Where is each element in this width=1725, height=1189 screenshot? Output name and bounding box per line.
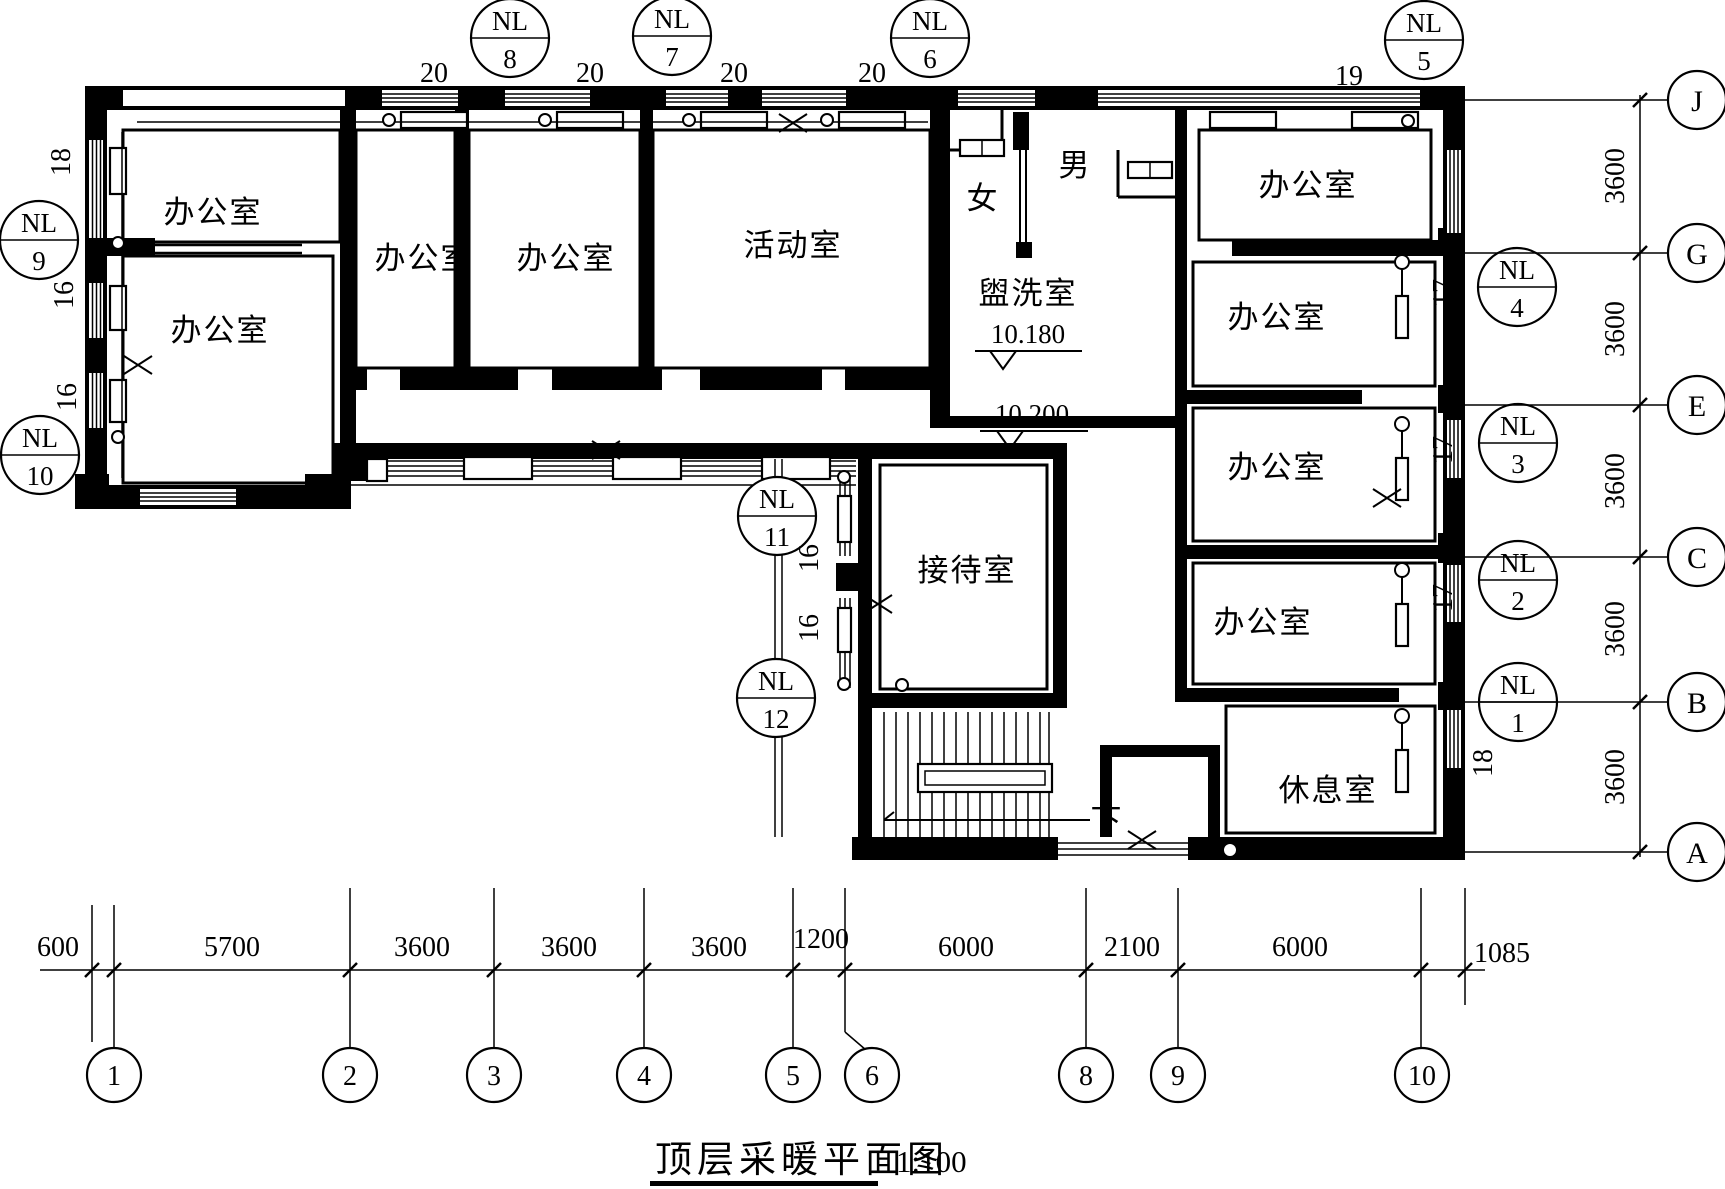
room-label-office: 办公室 <box>1228 450 1327 485</box>
elevation-corridor: 10.200 <box>995 399 1069 429</box>
svg-text:5: 5 <box>1417 46 1431 76</box>
riser-tag-nl10: NL 10 <box>1 416 79 494</box>
pipe-number: 20 <box>576 58 604 89</box>
svg-text:NL: NL <box>654 4 690 34</box>
svg-text:3600: 3600 <box>1600 148 1631 204</box>
svg-text:NL: NL <box>492 6 528 36</box>
svg-text:5700: 5700 <box>204 932 260 963</box>
svg-text:9: 9 <box>32 246 46 276</box>
svg-text:3600: 3600 <box>394 932 450 963</box>
pipe-number: 17 <box>1428 279 1459 307</box>
svg-text:11: 11 <box>764 522 790 552</box>
room-label-office: 办公室 <box>517 241 616 276</box>
axis-grid-bottom: 600 5700 3600 3600 3600 1200 6000 2100 6… <box>37 888 1530 1102</box>
svg-text:NL: NL <box>1500 670 1536 700</box>
pipe-riser-icon <box>539 114 551 126</box>
svg-text:5: 5 <box>786 1061 800 1092</box>
svg-text:NL: NL <box>1499 255 1535 285</box>
pipe-number: 18 <box>1468 749 1499 777</box>
svg-text:1200: 1200 <box>793 924 849 955</box>
pipe-number: 16 <box>49 281 80 309</box>
svg-text:3600: 3600 <box>1600 453 1631 509</box>
axis-dim-col: 600 5700 3600 3600 3600 1200 6000 2100 6… <box>37 924 1530 969</box>
svg-text:NL: NL <box>22 423 58 453</box>
pipe-number: 16 <box>794 544 825 572</box>
pipe-riser-icon <box>838 678 850 690</box>
room-label-female: 女 <box>967 181 1000 216</box>
svg-text:3600: 3600 <box>1600 301 1631 357</box>
room-label-washroom: 盥洗室 <box>979 276 1078 311</box>
pipe-riser-icon <box>1402 115 1414 127</box>
riser-tag-nl12: NL 12 <box>737 659 815 737</box>
room-label-reception: 接待室 <box>918 553 1017 588</box>
axis-dim-row: 3600 3600 3600 3600 3600 <box>1600 148 1631 805</box>
svg-text:8: 8 <box>503 44 517 74</box>
riser-tag-nl9: NL 9 <box>0 201 78 279</box>
svg-text:3600: 3600 <box>541 932 597 963</box>
pipe-number: 20 <box>858 58 886 89</box>
pipe-number: 20 <box>720 58 748 89</box>
pipe-number: 19 <box>1335 61 1363 92</box>
svg-text:G: G <box>1686 238 1708 271</box>
riser-tag-nl5: NL 5 <box>1385 1 1463 79</box>
svg-text:1: 1 <box>1511 708 1525 738</box>
svg-text:12: 12 <box>763 704 790 734</box>
svg-text:NL: NL <box>758 666 794 696</box>
room-label-office: 办公室 <box>164 195 263 230</box>
svg-text:1: 1 <box>107 1061 121 1092</box>
pipe-number: 16 <box>52 383 83 411</box>
svg-text:E: E <box>1688 390 1706 423</box>
svg-text:NL: NL <box>1500 411 1536 441</box>
riser-tag-nl7: NL 7 <box>633 0 711 75</box>
svg-text:600: 600 <box>37 932 79 963</box>
svg-text:3600: 3600 <box>1600 601 1631 657</box>
pipe-riser-icon <box>896 679 908 691</box>
svg-text:NL: NL <box>21 208 57 238</box>
pipe-number: 17 <box>1428 436 1459 464</box>
svg-text:2100: 2100 <box>1104 932 1160 963</box>
svg-text:3: 3 <box>487 1061 501 1092</box>
riser-tag-nl2: NL 2 <box>1479 541 1557 619</box>
room-label-office: 办公室 <box>1214 605 1313 640</box>
room-label-office: 办公室 <box>171 313 270 348</box>
svg-text:9: 9 <box>1171 1061 1185 1092</box>
riser-tag-nl3: NL 3 <box>1479 404 1557 482</box>
riser-tag-nl11: NL 11 <box>738 477 816 555</box>
svg-text:10: 10 <box>1408 1061 1436 1092</box>
stairs <box>884 712 1090 837</box>
stair-down-label: 下 <box>1091 803 1124 838</box>
svg-text:4: 4 <box>1510 293 1524 323</box>
svg-text:6: 6 <box>865 1061 879 1092</box>
pipe-riser-icon <box>383 114 395 126</box>
room-label-office: 办公室 <box>1228 300 1327 335</box>
svg-text:4: 4 <box>637 1061 651 1092</box>
room-label-office: 办公室 <box>375 241 474 276</box>
pipe-riser-icon <box>821 114 833 126</box>
elevation-marks: 10.180 10.200 <box>975 319 1088 449</box>
axis-bubble-row: J G E C B A <box>1668 71 1725 881</box>
drawing-scale: 1:100 <box>896 1144 967 1179</box>
pipe-riser-icon <box>683 114 695 126</box>
room-label-activity: 活动室 <box>744 228 843 263</box>
pipe-riser-icon <box>112 431 124 443</box>
svg-text:NL: NL <box>912 6 948 36</box>
svg-text:6000: 6000 <box>1272 932 1328 963</box>
svg-text:2: 2 <box>1511 586 1525 616</box>
title-block: 顶层采暖平面图 1:100 <box>650 1140 967 1186</box>
pipe-number: 17 <box>1428 584 1459 612</box>
title-underline <box>650 1181 878 1186</box>
svg-text:NL: NL <box>759 484 795 514</box>
svg-text:6: 6 <box>923 44 937 74</box>
riser-tag-nl4: NL 4 <box>1478 248 1556 326</box>
riser-tag-nl8: NL 8 <box>471 0 549 77</box>
pipe-riser-icon <box>838 471 850 483</box>
pipe-number: 16 <box>794 614 825 642</box>
pipe-number: 20 <box>420 58 448 89</box>
room-label-office: 办公室 <box>1259 168 1358 203</box>
svg-text:NL: NL <box>1406 8 1442 38</box>
pipe-riser-icon <box>1223 843 1237 857</box>
floor-plan-page: 10.180 10.200 办公室 办公室 办公室 办公室 活动室 办公室 办公… <box>0 0 1725 1189</box>
axis-bubble-col: 1 2 3 4 5 6 8 9 10 <box>87 1048 1449 1102</box>
svg-text:J: J <box>1691 85 1703 118</box>
pipe-riser-icon <box>112 237 124 249</box>
svg-text:C: C <box>1687 542 1707 575</box>
floor-plan-canvas: 10.180 10.200 办公室 办公室 办公室 办公室 活动室 办公室 办公… <box>0 0 1725 1189</box>
svg-text:1085: 1085 <box>1474 938 1530 969</box>
room-label-lounge: 休息室 <box>1279 773 1378 808</box>
room-label-male: 男 <box>1059 148 1092 183</box>
svg-text:8: 8 <box>1079 1061 1093 1092</box>
svg-text:6000: 6000 <box>938 932 994 963</box>
svg-text:7: 7 <box>665 42 679 72</box>
svg-text:3: 3 <box>1511 449 1525 479</box>
svg-text:2: 2 <box>343 1061 357 1092</box>
riser-tag-nl6: NL 6 <box>891 0 969 77</box>
svg-text:A: A <box>1686 837 1708 870</box>
svg-text:3600: 3600 <box>1600 749 1631 805</box>
svg-text:3600: 3600 <box>691 932 747 963</box>
elevation-washroom: 10.180 <box>991 319 1065 349</box>
svg-text:10: 10 <box>27 461 54 491</box>
svg-text:B: B <box>1687 687 1707 720</box>
pipe-number: 18 <box>46 148 77 176</box>
svg-text:NL: NL <box>1500 548 1536 578</box>
